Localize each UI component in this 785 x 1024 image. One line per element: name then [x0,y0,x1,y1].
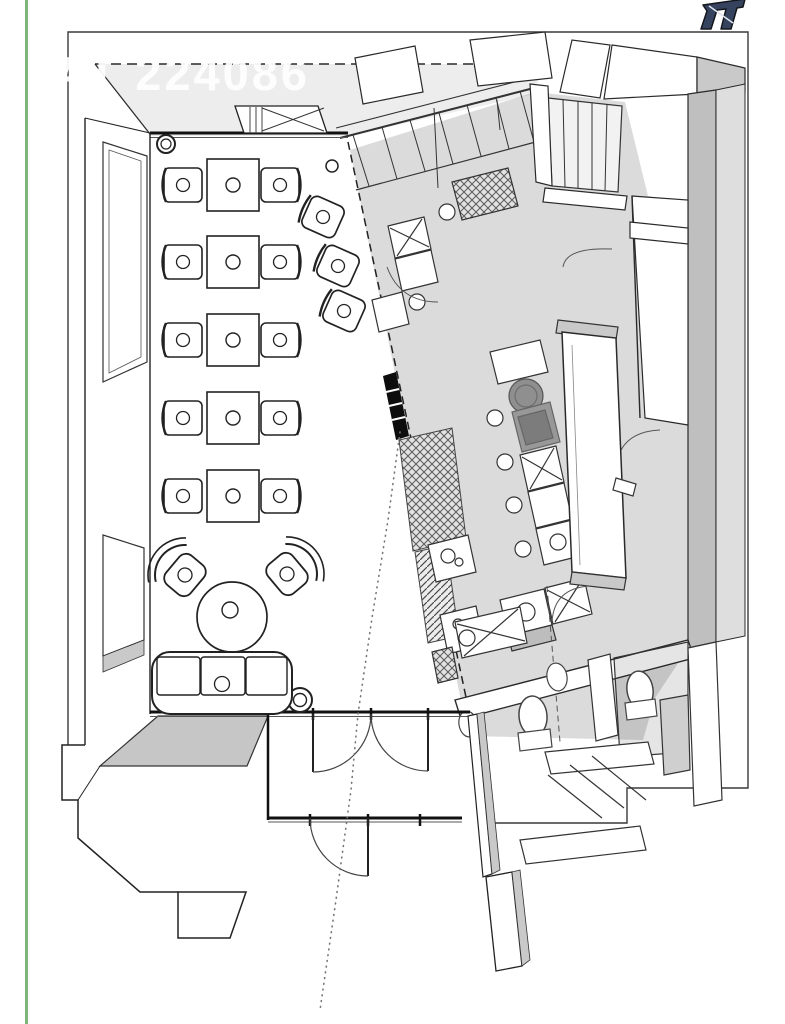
site-logo-icon [699,0,749,31]
dining-furniture [138,159,367,714]
bar-chair [311,242,361,289]
bar-chair [296,193,346,240]
sofa [152,652,292,714]
watermark-text: AT 224086 [54,46,310,101]
bottom-left-walls [62,745,246,938]
table-row [163,314,301,366]
table-row [163,470,301,522]
bar-chair [317,287,367,334]
entry-vestibule [100,688,500,877]
table-row [163,392,301,444]
lounge-chair [256,528,334,607]
table-row [163,159,301,211]
table-row [163,236,301,288]
screenshot-canvas: AT 224086 [0,0,785,1024]
walking-path [320,432,400,1010]
floor-plan-drawing [0,0,785,1024]
